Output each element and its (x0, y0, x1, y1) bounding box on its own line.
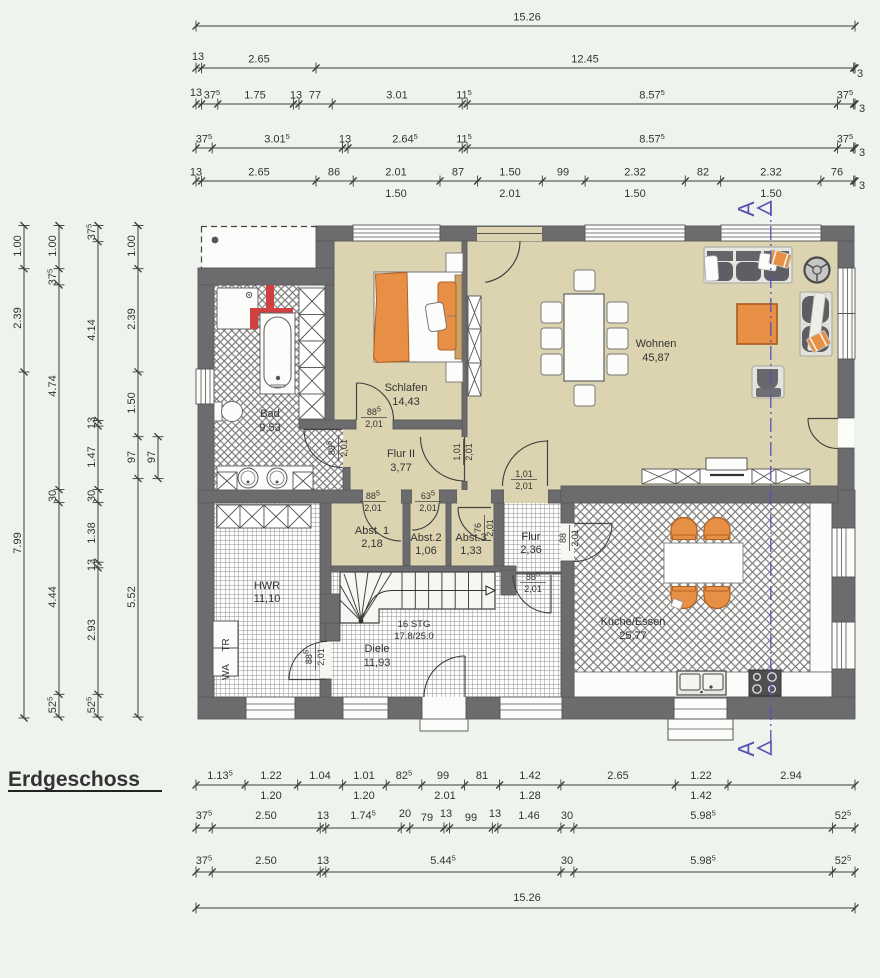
svg-text:3: 3 (859, 103, 865, 115)
svg-text:3: 3 (857, 68, 863, 80)
svg-text:3.01: 3.01 (386, 90, 407, 102)
svg-text:1.50: 1.50 (385, 188, 406, 200)
svg-text:13: 13 (86, 417, 98, 429)
svg-text:TR: TR (221, 638, 232, 651)
svg-text:13: 13 (317, 810, 329, 822)
svg-text:30: 30 (86, 490, 98, 502)
svg-text:2.65: 2.65 (248, 167, 269, 179)
svg-text:2,36: 2,36 (520, 544, 541, 556)
svg-text:99: 99 (437, 770, 449, 782)
svg-text:13: 13 (489, 808, 501, 820)
svg-text:87: 87 (452, 167, 464, 179)
svg-text:13: 13 (192, 51, 204, 63)
svg-text:1.00: 1.00 (126, 235, 138, 256)
svg-text:1.20: 1.20 (353, 790, 374, 802)
svg-text:1.28: 1.28 (519, 790, 540, 802)
svg-text:Bad: Bad (260, 408, 280, 420)
svg-text:Erdgeschoss: Erdgeschoss (8, 768, 140, 791)
svg-text:2,01: 2,01 (339, 439, 349, 457)
svg-text:14,43: 14,43 (392, 396, 420, 408)
svg-text:4.14: 4.14 (86, 319, 98, 340)
svg-text:2,01: 2,01 (524, 584, 542, 594)
svg-text:97: 97 (146, 451, 158, 463)
svg-text:12.45: 12.45 (571, 54, 599, 66)
svg-text:79: 79 (421, 812, 433, 824)
svg-text:HWR: HWR (254, 580, 280, 592)
svg-text:1.01: 1.01 (353, 770, 374, 782)
svg-text:2,01: 2,01 (419, 503, 437, 513)
svg-text:WA: WA (221, 664, 232, 680)
svg-text:4.74: 4.74 (47, 375, 59, 396)
svg-text:1.00: 1.00 (12, 235, 24, 256)
svg-text:1.04: 1.04 (309, 770, 330, 782)
svg-text:2.01: 2.01 (434, 790, 455, 802)
svg-text:3,77: 3,77 (390, 462, 411, 474)
svg-text:15.26: 15.26 (513, 892, 541, 904)
svg-text:1.46: 1.46 (518, 810, 539, 822)
svg-text:13: 13 (339, 134, 351, 146)
svg-text:30: 30 (561, 810, 573, 822)
svg-text:2.32: 2.32 (760, 167, 781, 179)
svg-text:2,01: 2,01 (316, 648, 326, 666)
svg-text:Abst. 1: Abst. 1 (355, 525, 389, 537)
svg-text:20: 20 (399, 808, 411, 820)
svg-text:13: 13 (86, 559, 98, 571)
svg-text:1,01: 1,01 (515, 469, 533, 479)
svg-text:97: 97 (126, 451, 138, 463)
svg-text:81: 81 (476, 770, 488, 782)
svg-text:1.50: 1.50 (499, 167, 520, 179)
svg-text:99: 99 (557, 167, 569, 179)
svg-text:Diele: Diele (364, 643, 389, 655)
svg-text:13: 13 (290, 90, 302, 102)
svg-text:2.39: 2.39 (126, 308, 138, 329)
svg-text:2,01: 2,01 (464, 443, 474, 461)
svg-text:1.50: 1.50 (126, 392, 138, 413)
svg-text:13: 13 (317, 855, 329, 867)
svg-text:2.93: 2.93 (86, 619, 98, 640)
svg-text:82: 82 (697, 167, 709, 179)
svg-text:2,18: 2,18 (361, 538, 382, 550)
svg-text:30: 30 (47, 490, 59, 502)
svg-text:4.44: 4.44 (47, 586, 59, 607)
svg-text:Wohnen: Wohnen (636, 338, 677, 350)
svg-text:2.50: 2.50 (255, 855, 276, 867)
svg-text:11,10: 11,10 (254, 593, 281, 605)
svg-text:5.52: 5.52 (126, 586, 138, 607)
svg-text:2.01: 2.01 (499, 188, 520, 200)
svg-text:13: 13 (190, 87, 202, 99)
svg-text:25,77: 25,77 (619, 630, 647, 642)
svg-text:2.39: 2.39 (12, 307, 24, 328)
svg-text:Abst.2: Abst.2 (410, 532, 441, 544)
svg-text:88: 88 (558, 533, 568, 543)
svg-text:30: 30 (561, 855, 573, 867)
svg-text:3: 3 (859, 147, 865, 159)
svg-text:1.38: 1.38 (86, 522, 98, 543)
svg-text:2,01: 2,01 (485, 519, 495, 537)
svg-text:7.99: 7.99 (12, 532, 24, 553)
svg-text:1.75: 1.75 (244, 90, 265, 102)
svg-text:2.94: 2.94 (780, 770, 801, 782)
svg-text:1.22: 1.22 (260, 770, 281, 782)
svg-text:A: A (733, 201, 759, 217)
svg-text:1.50: 1.50 (760, 188, 781, 200)
svg-text:15.26: 15.26 (513, 12, 541, 24)
svg-text:77: 77 (309, 90, 321, 102)
svg-text:1,01: 1,01 (452, 443, 462, 461)
svg-text:1.00: 1.00 (47, 235, 59, 256)
svg-text:Flur: Flur (522, 531, 541, 543)
svg-text:9,53: 9,53 (259, 422, 280, 434)
svg-text:99: 99 (465, 812, 477, 824)
svg-text:2,01: 2,01 (364, 503, 382, 513)
svg-text:2.01: 2.01 (385, 167, 406, 179)
svg-text:1.20: 1.20 (260, 790, 281, 802)
svg-text:76: 76 (473, 523, 483, 533)
svg-text:1.42: 1.42 (690, 790, 711, 802)
svg-text:A: A (733, 741, 759, 757)
svg-text:3: 3 (859, 180, 865, 192)
svg-text:86: 86 (328, 167, 340, 179)
svg-text:2,01: 2,01 (515, 481, 533, 491)
svg-text:1.22: 1.22 (690, 770, 711, 782)
svg-text:76: 76 (831, 167, 843, 179)
svg-text:Küche/Essen: Küche/Essen (601, 616, 666, 628)
svg-text:2.32: 2.32 (624, 167, 645, 179)
svg-text:45,87: 45,87 (642, 352, 670, 364)
svg-text:13: 13 (440, 808, 452, 820)
svg-text:1,06: 1,06 (415, 545, 436, 557)
svg-text:Schlafen: Schlafen (385, 382, 428, 394)
svg-text:2,01: 2,01 (365, 419, 383, 429)
svg-text:16 STG: 16 STG (398, 619, 431, 630)
svg-text:2.50: 2.50 (255, 810, 276, 822)
svg-text:1.42: 1.42 (519, 770, 540, 782)
svg-text:13: 13 (190, 167, 202, 179)
svg-text:2.65: 2.65 (248, 54, 269, 66)
svg-text:11,93: 11,93 (364, 657, 391, 669)
svg-text:1,33: 1,33 (460, 545, 481, 557)
svg-text:1.50: 1.50 (624, 188, 645, 200)
svg-text:2,01: 2,01 (570, 529, 580, 547)
svg-text:Flur II: Flur II (387, 448, 415, 460)
svg-text:2.65: 2.65 (607, 770, 628, 782)
svg-text:17.8/25.0: 17.8/25.0 (394, 631, 434, 642)
svg-text:1.47: 1.47 (86, 446, 98, 467)
